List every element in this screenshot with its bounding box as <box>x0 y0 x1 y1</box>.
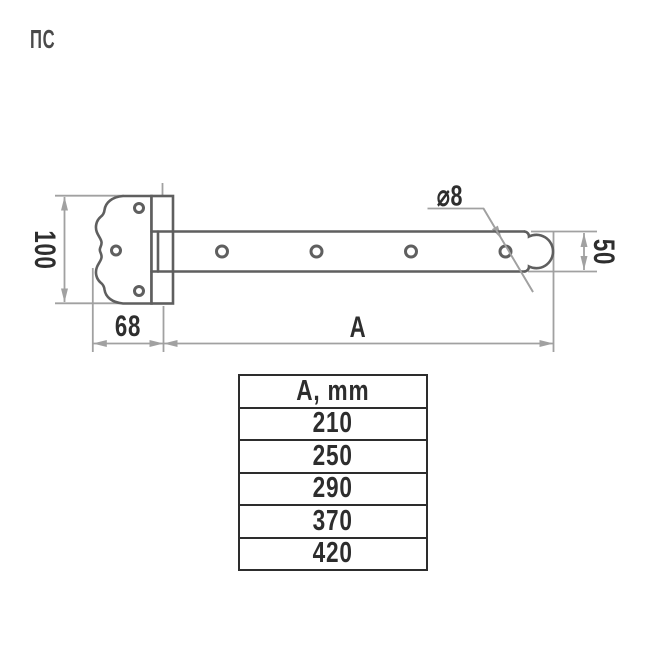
strap-hole-3 <box>406 246 417 257</box>
leader-line-diagonal <box>484 209 534 293</box>
drawing-sheet: ПС <box>0 0 650 650</box>
arrow-68-right <box>150 340 164 347</box>
dim-label-diameter: ⌀8 <box>432 183 468 212</box>
table-row: 420 <box>240 537 426 570</box>
arrow-a-right <box>540 340 554 347</box>
table-row: 370 <box>240 504 426 537</box>
table-row: 210 <box>240 407 426 440</box>
strap-hole-2 <box>311 246 322 257</box>
arrow-a-left <box>164 340 178 347</box>
plate-hole-bottom <box>135 287 144 296</box>
strap-hole-1 <box>217 246 228 257</box>
size-table: А, mm 210 250 290 370 420 <box>238 374 428 571</box>
arrow-68-left <box>93 340 107 347</box>
arrow-100-down <box>61 289 68 303</box>
table-row: 290 <box>240 472 426 505</box>
hinge-outline <box>96 196 553 304</box>
plate-hole-middle <box>112 246 121 255</box>
strap-tip <box>525 232 554 272</box>
hinge-barrel <box>152 196 174 304</box>
plate-hole-top <box>135 204 144 213</box>
leader-line-diameter <box>428 209 534 293</box>
dim-label-a: А <box>347 313 370 343</box>
size-table-header: А, mm <box>240 376 426 407</box>
dim-label-50: 50 <box>588 234 618 269</box>
arrow-100-up <box>61 197 68 211</box>
dim-label-68: 68 <box>110 312 145 342</box>
dim-label-100: 100 <box>29 223 59 276</box>
table-row: 250 <box>240 439 426 472</box>
